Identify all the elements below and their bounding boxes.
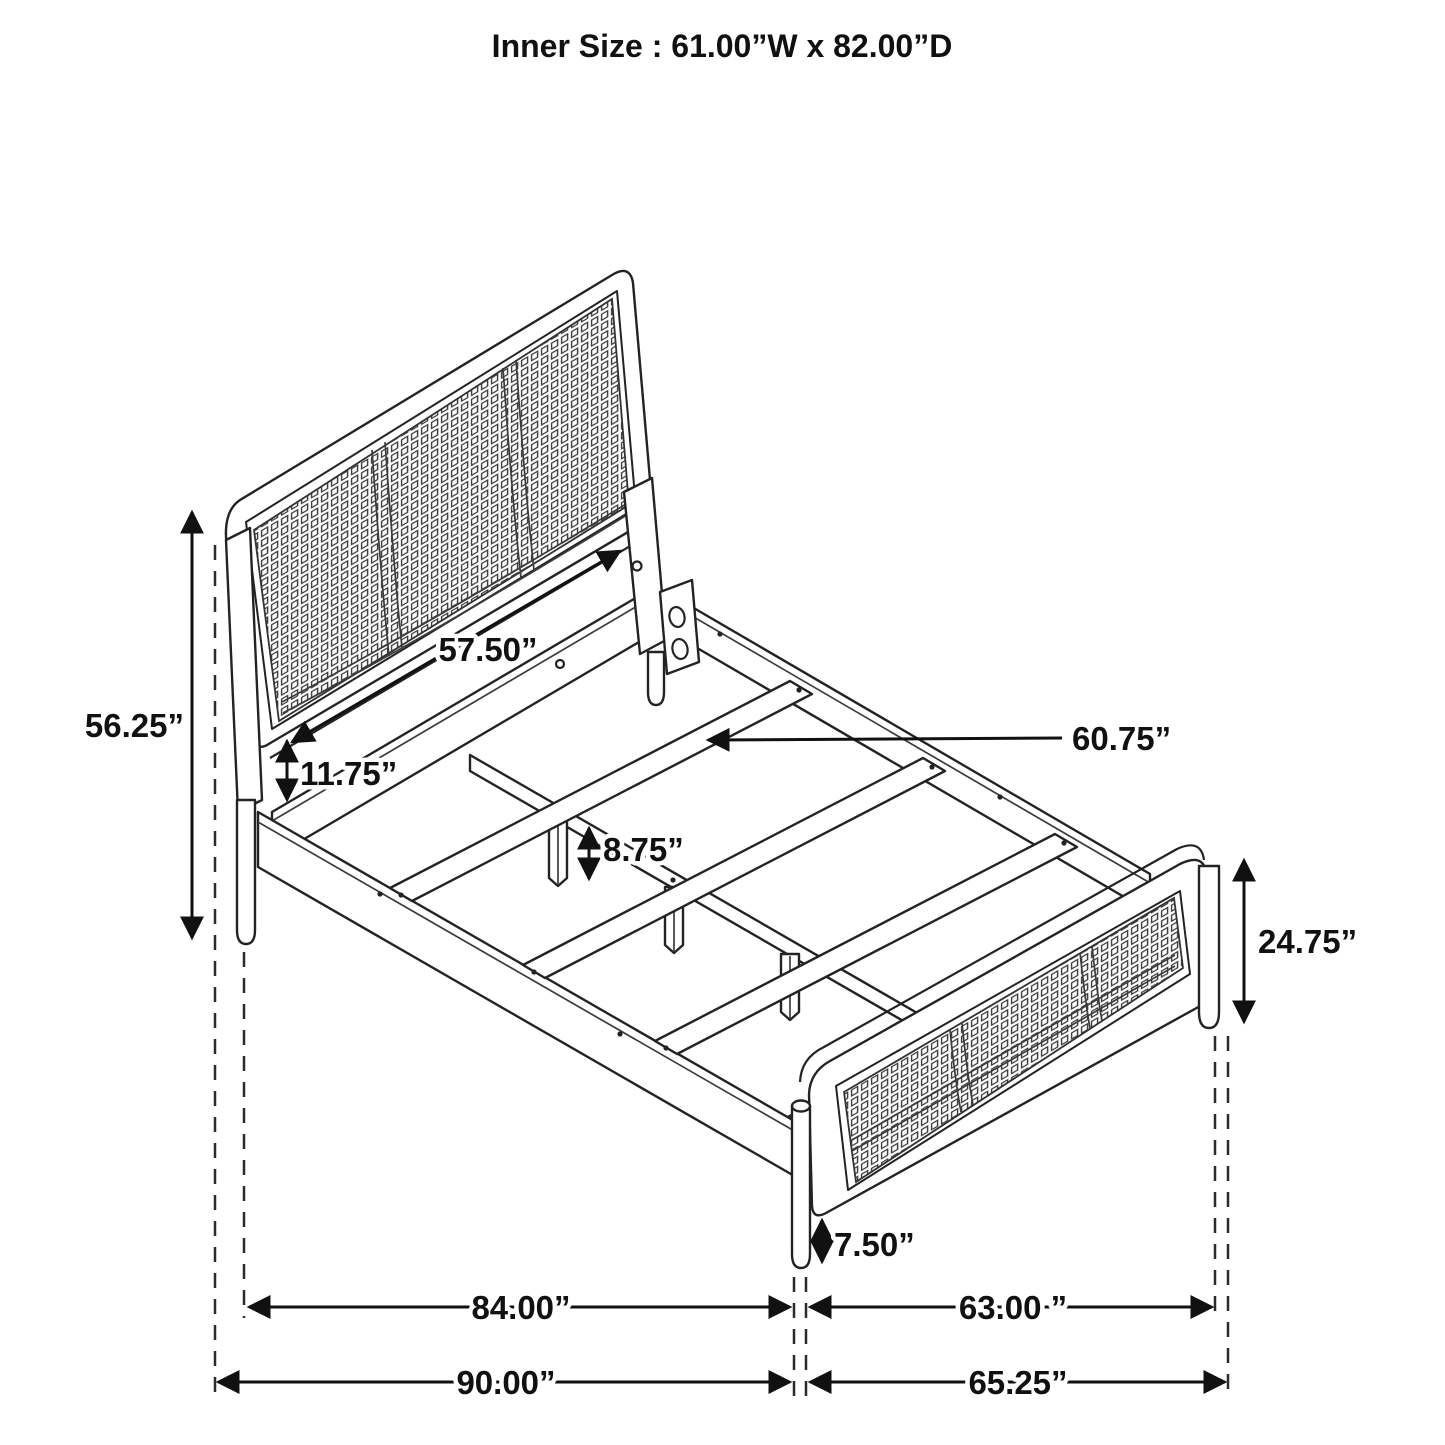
- dim-overall-length: 90.00”: [218, 1364, 790, 1401]
- diagram-page: 56.25” 57.50” 11.75” 8.75” 60.75” 24.75”…: [0, 0, 1445, 1445]
- dim-footboard-inner-width: 63.00 ”: [810, 1289, 1212, 1326]
- inner-length-label: 84.00”: [471, 1289, 570, 1326]
- dim-overall-width: 65.25”: [810, 1364, 1225, 1401]
- dim-footboard-leg-height: 7.50”: [822, 1220, 915, 1263]
- overall-width-label: 65.25”: [968, 1364, 1067, 1401]
- footboard-leg-height-label: 7.50”: [834, 1226, 915, 1263]
- headboard-right-post: [624, 478, 699, 705]
- panel-to-rail-gap-label: 11.75”: [300, 755, 397, 792]
- slat-support-leg-height-label: 8.75”: [603, 831, 684, 868]
- footboard: [792, 845, 1219, 1268]
- slat-length-label: 60.75”: [1072, 720, 1171, 757]
- overall-length-label: 90.00”: [456, 1364, 555, 1401]
- footboard-inner-width-label: 63.00 ”: [959, 1289, 1067, 1326]
- headboard-height-label: 56.25”: [85, 707, 184, 744]
- bed-dimension-diagram: 56.25” 57.50” 11.75” 8.75” 60.75” 24.75”…: [0, 0, 1445, 1445]
- footboard-right-leg: [1199, 866, 1219, 1028]
- footboard-near-leg: [792, 1101, 810, 1269]
- headboard-rail-length-label: 57.50”: [438, 631, 537, 668]
- dim-footboard-height: 24.75”: [1244, 860, 1357, 1022]
- diagram-title: Inner Size : 61.00”W x 82.00”D: [492, 28, 953, 64]
- dim-headboard-height: 56.25”: [85, 512, 192, 938]
- footboard-height-label: 24.75”: [1258, 923, 1357, 960]
- dim-inner-length: 84.00”: [249, 1289, 790, 1326]
